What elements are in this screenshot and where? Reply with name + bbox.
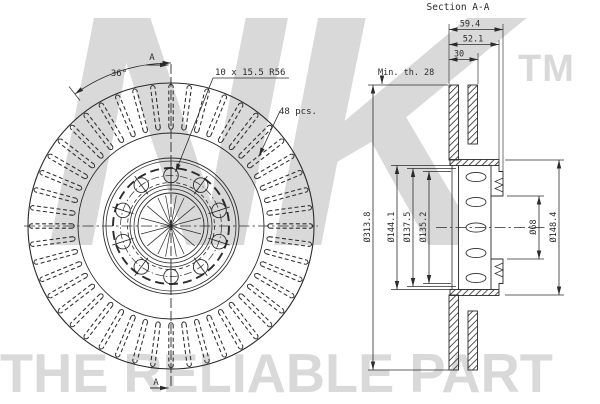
front-view	[24, 63, 318, 388]
dim-disc-thickness: 30	[454, 50, 464, 60]
dim-min-thickness: Min. th. 28	[378, 68, 434, 78]
dim-total-height: 59.4	[460, 20, 480, 30]
holes-label: 10 x 15.5 R56	[215, 68, 285, 78]
hat-flange-top	[450, 160, 499, 166]
dim-outer-diameter: Ø313.8	[362, 212, 373, 243]
section-title: Section A-A	[427, 2, 490, 13]
brake-disc-drawing: 36° 10 x 15.5 R56 48 pcs. A A	[0, 0, 600, 400]
section-letter-top: A	[149, 53, 155, 63]
hat-flange-bottom	[450, 290, 499, 296]
dim-hub-flange: Ø148.4	[548, 212, 559, 243]
dim-bell-outer: Ø144.1	[386, 212, 397, 243]
technical-drawing-page: NK TM THE RELIABLE PART	[0, 0, 600, 400]
front-plate-bottom	[449, 295, 459, 370]
dim-bore: Ø68	[528, 219, 539, 234]
holes-leader-line	[176, 78, 214, 172]
back-plate-bottom	[468, 311, 478, 370]
rim-teeth-bottom	[495, 263, 503, 277]
angle-tick	[69, 87, 80, 101]
front-plate-top	[449, 85, 459, 160]
angle-label: 36°	[111, 69, 127, 79]
vanes-label: 48 pcs.	[279, 107, 317, 117]
rim-teeth-top	[495, 178, 503, 192]
section-letter-bottom: A	[153, 378, 159, 388]
dim-hub-height: 52.1	[463, 35, 483, 45]
dim-bell-mid: Ø137.5	[402, 212, 413, 243]
back-plate-top	[468, 85, 478, 144]
vanes-leader-line	[259, 111, 280, 156]
dim-bell-inner: Ø135.2	[418, 212, 429, 243]
